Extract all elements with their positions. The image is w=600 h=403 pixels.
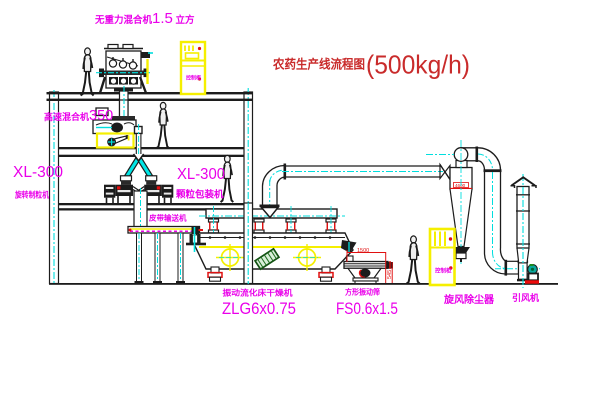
- svg-text:控制柜: 控制柜: [186, 75, 201, 82]
- svg-text:颗粒包装机: 颗粒包装机: [176, 189, 224, 201]
- svg-text:农药生产线流程图: 农药生产线流程图: [272, 57, 365, 72]
- svg-text:FS0.6x1.5: FS0.6x1.5: [336, 299, 398, 318]
- svg-text:旋转制粒机: 旋转制粒机: [14, 190, 49, 200]
- svg-text:XL-300: XL-300: [13, 164, 63, 181]
- svg-text:545: 545: [387, 270, 393, 279]
- svg-text:旋风除尘器: 旋风除尘器: [443, 293, 495, 306]
- svg-text:1500: 1500: [357, 248, 369, 254]
- svg-text:(500kg/h): (500kg/h): [366, 50, 470, 80]
- svg-text:控制柜: 控制柜: [435, 267, 452, 275]
- svg-text:振动流化床干燥机: 振动流化床干燥机: [223, 288, 293, 298]
- svg-text:XL-300: XL-300: [177, 166, 225, 183]
- svg-text:ZLG6x0.75: ZLG6x0.75: [222, 299, 296, 318]
- svg-text:皮带输送机: 皮带输送机: [148, 213, 187, 223]
- svg-text:4600: 4600: [455, 183, 466, 188]
- svg-text:引风机: 引风机: [512, 292, 539, 303]
- svg-text:方形振动筛: 方形振动筛: [345, 287, 380, 297]
